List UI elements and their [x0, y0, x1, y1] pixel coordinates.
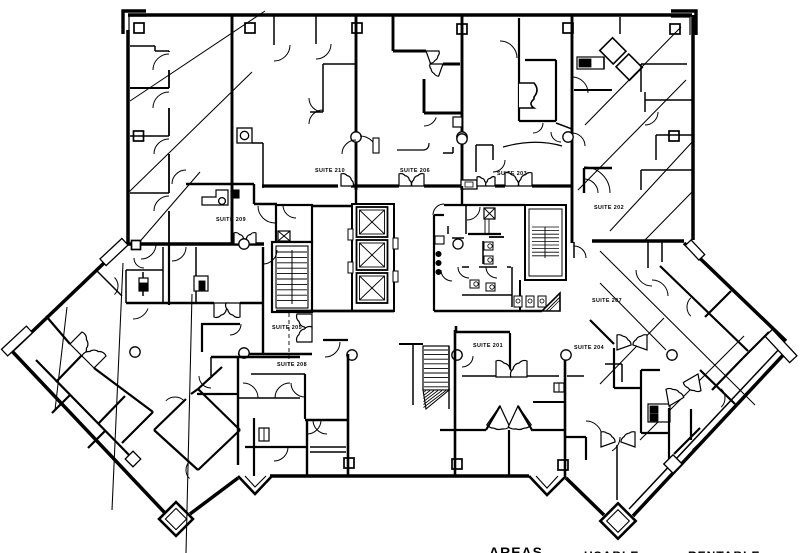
svg-text:SUITE 201: SUITE 201	[473, 343, 503, 349]
svg-text:SUITE 202: SUITE 202	[594, 205, 624, 211]
svg-text:SUITE 208: SUITE 208	[277, 362, 307, 368]
svg-text:AREAS: AREAS	[489, 544, 543, 553]
svg-text:SUITE 206: SUITE 206	[400, 168, 430, 174]
svg-text:SUITE 204: SUITE 204	[574, 345, 604, 351]
svg-text:USABLE: USABLE	[584, 549, 639, 553]
svg-text:RENTABLE: RENTABLE	[688, 549, 760, 553]
svg-text:SUITE 205: SUITE 205	[272, 325, 302, 331]
svg-text:SUITE 209: SUITE 209	[216, 217, 246, 223]
svg-text:SUITE 210: SUITE 210	[315, 168, 345, 174]
